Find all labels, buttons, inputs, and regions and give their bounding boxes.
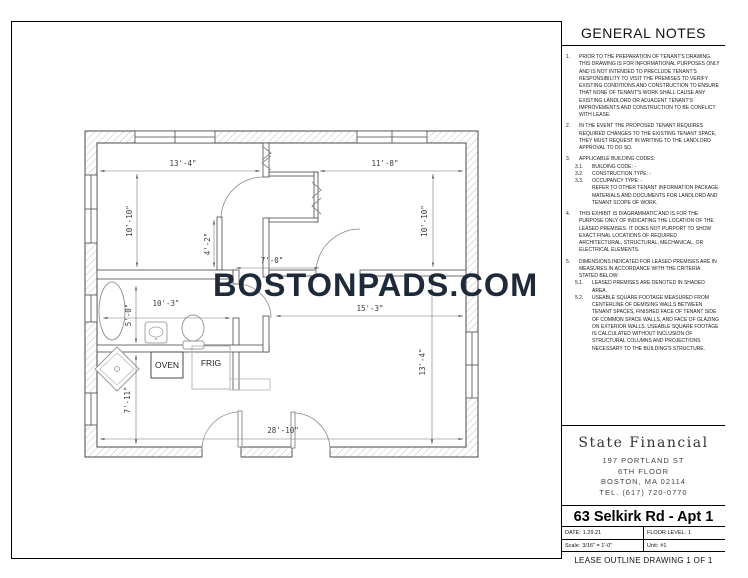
dim-bathroom-depth: 5'-0": [124, 304, 133, 327]
dim-bedroom2-width: 11'-8": [371, 159, 398, 168]
address-line: 197 PORTLAND ST: [562, 456, 725, 467]
dim-living-depth: 13'-4": [418, 348, 427, 375]
address-line: 6TH FLOOR: [562, 467, 725, 478]
wall: [217, 217, 222, 270]
title-block: State Financial 197 PORTLAND ST 6TH FLOO…: [562, 425, 725, 569]
scale-cell: Scale:3/16" = 1'-0": [562, 540, 644, 553]
note-text: OCCUPANCY TYPE: -: [592, 178, 720, 185]
date-cell: DATE:1.29.21: [562, 527, 644, 540]
note-text: USEABLE SQUARE FOOTAGE MEASURED FROM CEN…: [592, 295, 720, 353]
floor-level-cell: FLOOR LEVEL:1: [644, 527, 725, 540]
note-number: 3.2.: [575, 171, 590, 178]
note-text: CONSTRUCTION TYPE: -: [592, 171, 720, 178]
note-text: APPLICABLE BUILDING CODES:: [579, 156, 720, 163]
closet-wall: [269, 172, 318, 176]
note-number: 5.2.: [575, 295, 590, 353]
company-block: State Financial 197 PORTLAND ST 6TH FLOO…: [562, 435, 725, 505]
bathtub: [99, 282, 125, 340]
door-arc: [221, 177, 263, 218]
note-text: BUILDING CODE: -: [592, 164, 720, 171]
note-item: 3. APPLICABLE BUILDING CODES:: [566, 156, 720, 163]
note-item: 3.2. CONSTRUCTION TYPE: -: [566, 171, 720, 178]
frig-label: FRIG: [201, 358, 221, 368]
dim-bedroom1-width: 13'-4": [169, 159, 196, 168]
dim-bathroom-width: 10'-3": [152, 299, 179, 308]
phone: TEL. (617) 720-0770: [562, 488, 725, 499]
note-number: 3.: [566, 156, 577, 163]
entry-opening: [292, 444, 330, 459]
wall: [263, 316, 269, 352]
note-item: 4. THIS EXHIBIT IS DIAGRAMMATIC AND IS F…: [566, 211, 720, 255]
note-item: 3.3. OCCUPANCY TYPE: -: [566, 178, 720, 185]
note-text: LEASED PREMISES ARE DENOTED IN SHADED AR…: [592, 280, 720, 295]
note-number: 1.: [566, 54, 577, 119]
note-number: 5.: [566, 259, 577, 281]
note-text: DIMENSIONS INDICATED FOR LEASED PREMISES…: [579, 259, 720, 281]
closet-wall: [314, 172, 318, 222]
note-item: REFER TO OTHER TENANT INFORMATION PACKAG…: [566, 185, 720, 207]
dim-kitchen-depth: 7'-11": [123, 386, 132, 413]
wall-break-icon: [262, 146, 321, 214]
entry-opening: [202, 444, 241, 459]
dim-wall-segment: 4'-2": [203, 233, 212, 256]
note-text: REFER TO OTHER TENANT INFORMATION PACKAG…: [592, 185, 720, 207]
dim-bedroom1-depth: 10'-10": [125, 205, 134, 237]
note-text: THIS EXHIBIT IS DIAGRAMMATIC AND IS FOR …: [579, 211, 720, 255]
note-number: 5.1.: [575, 280, 590, 295]
dim-living-width: 15'-3": [356, 304, 383, 313]
door-leaf: [238, 411, 242, 447]
note-item: 5. DIMENSIONS INDICATED FOR LEASED PREMI…: [566, 259, 720, 281]
note-text: IN THE EVENT THE PROPOSED TENANT REQUIRE…: [579, 123, 720, 152]
watermark: BOSTONPADS.COM: [213, 269, 538, 302]
closet-wall: [269, 218, 318, 222]
toilet: [182, 315, 204, 341]
note-text: PRIOR TO THE PREPARATION OF TENANT'S DRA…: [579, 54, 720, 119]
dim-hall-width: 7'-0": [261, 256, 284, 265]
note-number: 2.: [566, 123, 577, 152]
address-line: BOSTON, MA 02114: [562, 477, 725, 488]
note-item: 5.1. LEASED PREMISES ARE DENOTED IN SHAD…: [566, 280, 720, 295]
dim-bedroom2-depth: 10'-10": [420, 205, 429, 237]
note-item: 5.2. USEABLE SQUARE FOOTAGE MEASURED FRO…: [566, 295, 720, 353]
note-item: 2. IN THE EVENT THE PROPOSED TENANT REQU…: [566, 123, 720, 152]
note-item: 1. PRIOR TO THE PREPARATION OF TENANT'S …: [566, 54, 720, 119]
kitchen-sink: [95, 347, 139, 391]
company-name: State Financial: [562, 435, 725, 451]
dim-overall-width: 28'-10": [267, 426, 299, 435]
general-notes-title: GENERAL NOTES: [562, 21, 725, 46]
note-number: 4.: [566, 211, 577, 255]
right-panel: GENERAL NOTES 1. PRIOR TO THE PREPARATIO…: [561, 21, 725, 559]
note-number: 3.1.: [575, 164, 590, 171]
unit-cell: Unit:#1: [644, 540, 725, 553]
sheet-title: LEASE OUTLINE DRAWING 1 OF 1: [562, 552, 725, 569]
info-grid: DATE:1.29.21 FLOOR LEVEL:1 Scale:3/16" =…: [562, 527, 725, 552]
project-title: 63 Selkirk Rd - Apt 1: [562, 505, 725, 527]
note-item: 3.1. BUILDING CODE: -: [566, 164, 720, 171]
note-number: 3.3.: [575, 178, 590, 185]
general-notes-list: 1. PRIOR TO THE PREPARATION OF TENANT'S …: [562, 46, 725, 353]
note-number: [575, 185, 590, 207]
oven-label: OVEN: [155, 360, 179, 370]
